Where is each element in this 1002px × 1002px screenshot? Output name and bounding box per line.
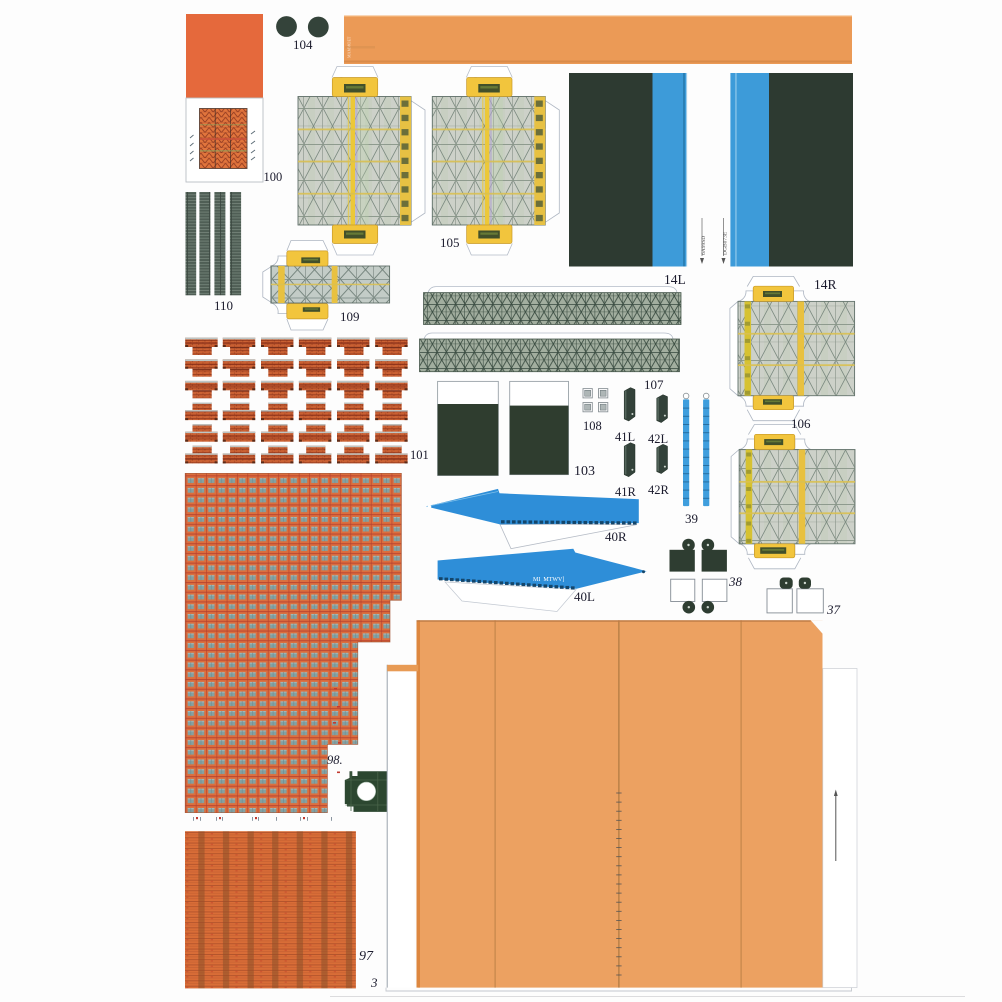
svg-text:41R: 41R [615, 485, 637, 499]
svg-text:6A99SD: 6A99SD [701, 236, 707, 255]
svg-text:41L: 41L [615, 430, 635, 444]
svg-text:14L: 14L [664, 272, 686, 287]
svg-text:42L: 42L [648, 432, 668, 446]
svg-text:110: 110 [214, 298, 233, 313]
svg-text:104: 104 [293, 37, 313, 52]
svg-text:39: 39 [685, 511, 698, 526]
svg-text:38: 38 [728, 574, 743, 589]
svg-text:103: 103 [574, 464, 595, 479]
svg-text:97: 97 [359, 949, 374, 964]
svg-text:40R: 40R [605, 529, 627, 544]
svg-text:101: 101 [410, 448, 429, 462]
svg-text:37: 37 [826, 602, 841, 617]
svg-text:3: 3 [370, 975, 378, 990]
svg-text:100: 100 [264, 170, 283, 184]
svg-text:40L: 40L [574, 589, 595, 604]
svg-text:108: 108 [583, 419, 602, 433]
svg-text:109: 109 [340, 309, 360, 324]
svg-text:98.: 98. [327, 753, 343, 767]
svg-text:106: 106 [791, 416, 811, 431]
svg-text:14R: 14R [814, 277, 837, 292]
svg-text:42R: 42R [648, 483, 670, 497]
svg-text:DGB073E: DGB073E [723, 231, 729, 255]
svg-text:MI MTWV]: MI MTWV] [533, 577, 564, 583]
svg-text:105: 105 [440, 235, 460, 250]
svg-text:107: 107 [644, 377, 664, 392]
